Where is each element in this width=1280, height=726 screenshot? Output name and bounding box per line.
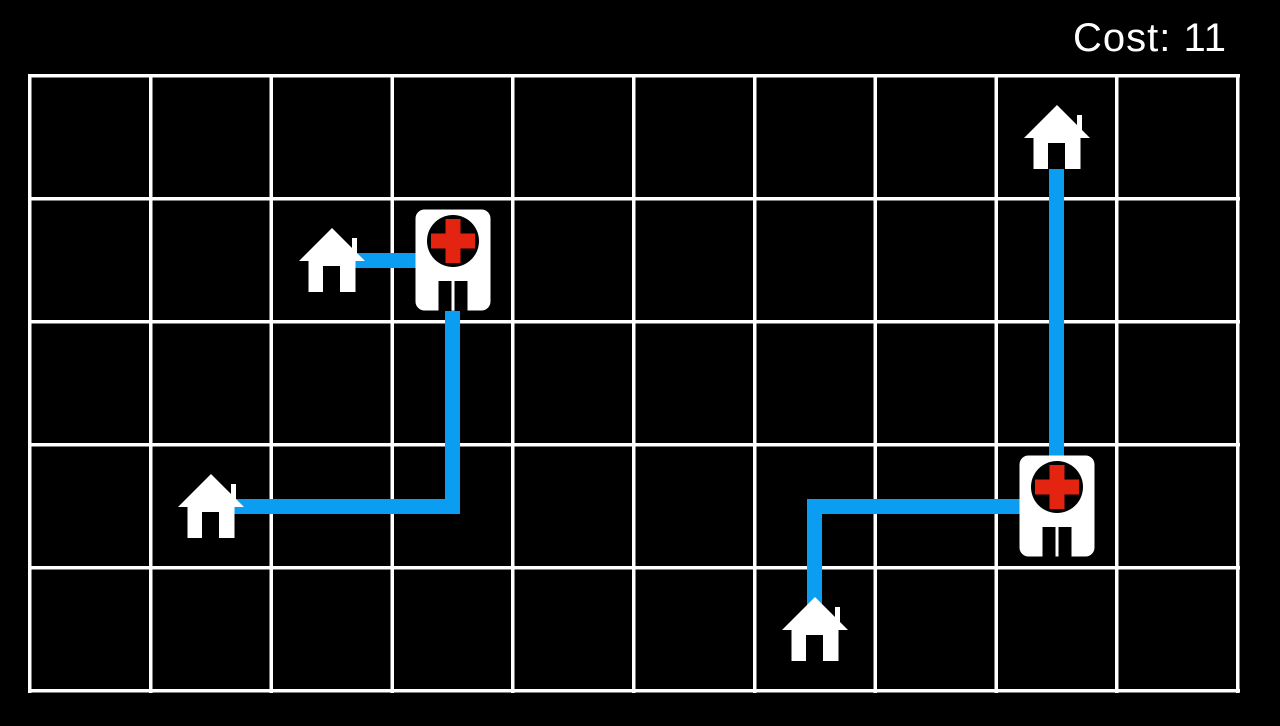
- house-icon: [1024, 105, 1090, 169]
- game-stage: Cost: 11: [0, 0, 1280, 726]
- house-lower-left[interactable]: [178, 474, 244, 538]
- house-icon: [782, 597, 848, 661]
- house-icon: [299, 228, 365, 292]
- house-icon: [178, 474, 244, 538]
- house-mid-left[interactable]: [299, 228, 365, 292]
- cost-label: Cost: 11: [1073, 16, 1227, 61]
- hospital-left[interactable]: [415, 209, 491, 311]
- hospital-icon: [415, 209, 491, 311]
- hospital-right[interactable]: [1019, 455, 1095, 557]
- house-top-right[interactable]: [1024, 105, 1090, 169]
- hospital-icon: [1019, 455, 1095, 557]
- house-bottom[interactable]: [782, 597, 848, 661]
